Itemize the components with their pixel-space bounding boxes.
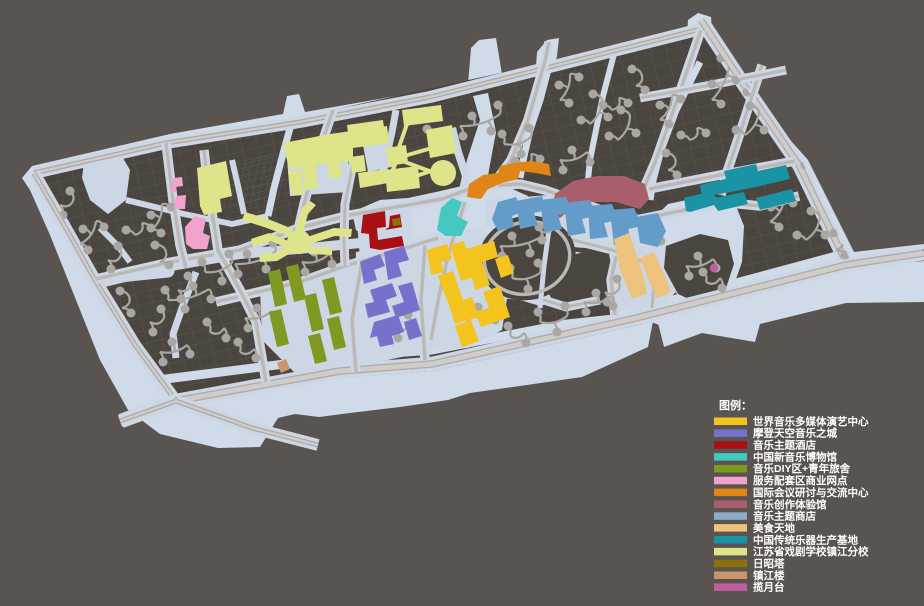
svg-text:美食天地: 美食天地 — [753, 521, 795, 534]
svg-text:摩登天空音乐之城: 摩登天空音乐之城 — [753, 427, 837, 440]
svg-text:音乐创作体验馆: 音乐创作体验馆 — [753, 498, 827, 511]
svg-text:中国传统乐器生产基地: 中国传统乐器生产基地 — [753, 533, 858, 546]
svg-text:揽月台: 揽月台 — [753, 581, 785, 594]
svg-text:图例：: 图例： — [719, 398, 752, 412]
svg-text:音乐主题酒店: 音乐主题酒店 — [753, 439, 816, 452]
svg-text:音乐主题商店: 音乐主题商店 — [753, 510, 816, 523]
svg-text:音乐DIY区+青年旅舍: 音乐DIY区+青年旅舍 — [753, 462, 851, 475]
svg-text:服务配套区商业网点: 服务配套区商业网点 — [753, 474, 848, 487]
svg-text:中国新音乐博物馆: 中国新音乐博物馆 — [753, 450, 837, 463]
svg-text:江苏省戏剧学校镇江分校: 江苏省戏剧学校镇江分校 — [753, 545, 869, 558]
svg-text:日昭塔: 日昭塔 — [753, 557, 785, 570]
svg-text:镇江楼: 镇江楼 — [753, 569, 785, 582]
svg-text:国际会议研讨与交流中心: 国际会议研讨与交流中心 — [753, 486, 869, 499]
svg-text:世界音乐多媒体演艺中心: 世界音乐多媒体演艺中心 — [753, 415, 869, 428]
